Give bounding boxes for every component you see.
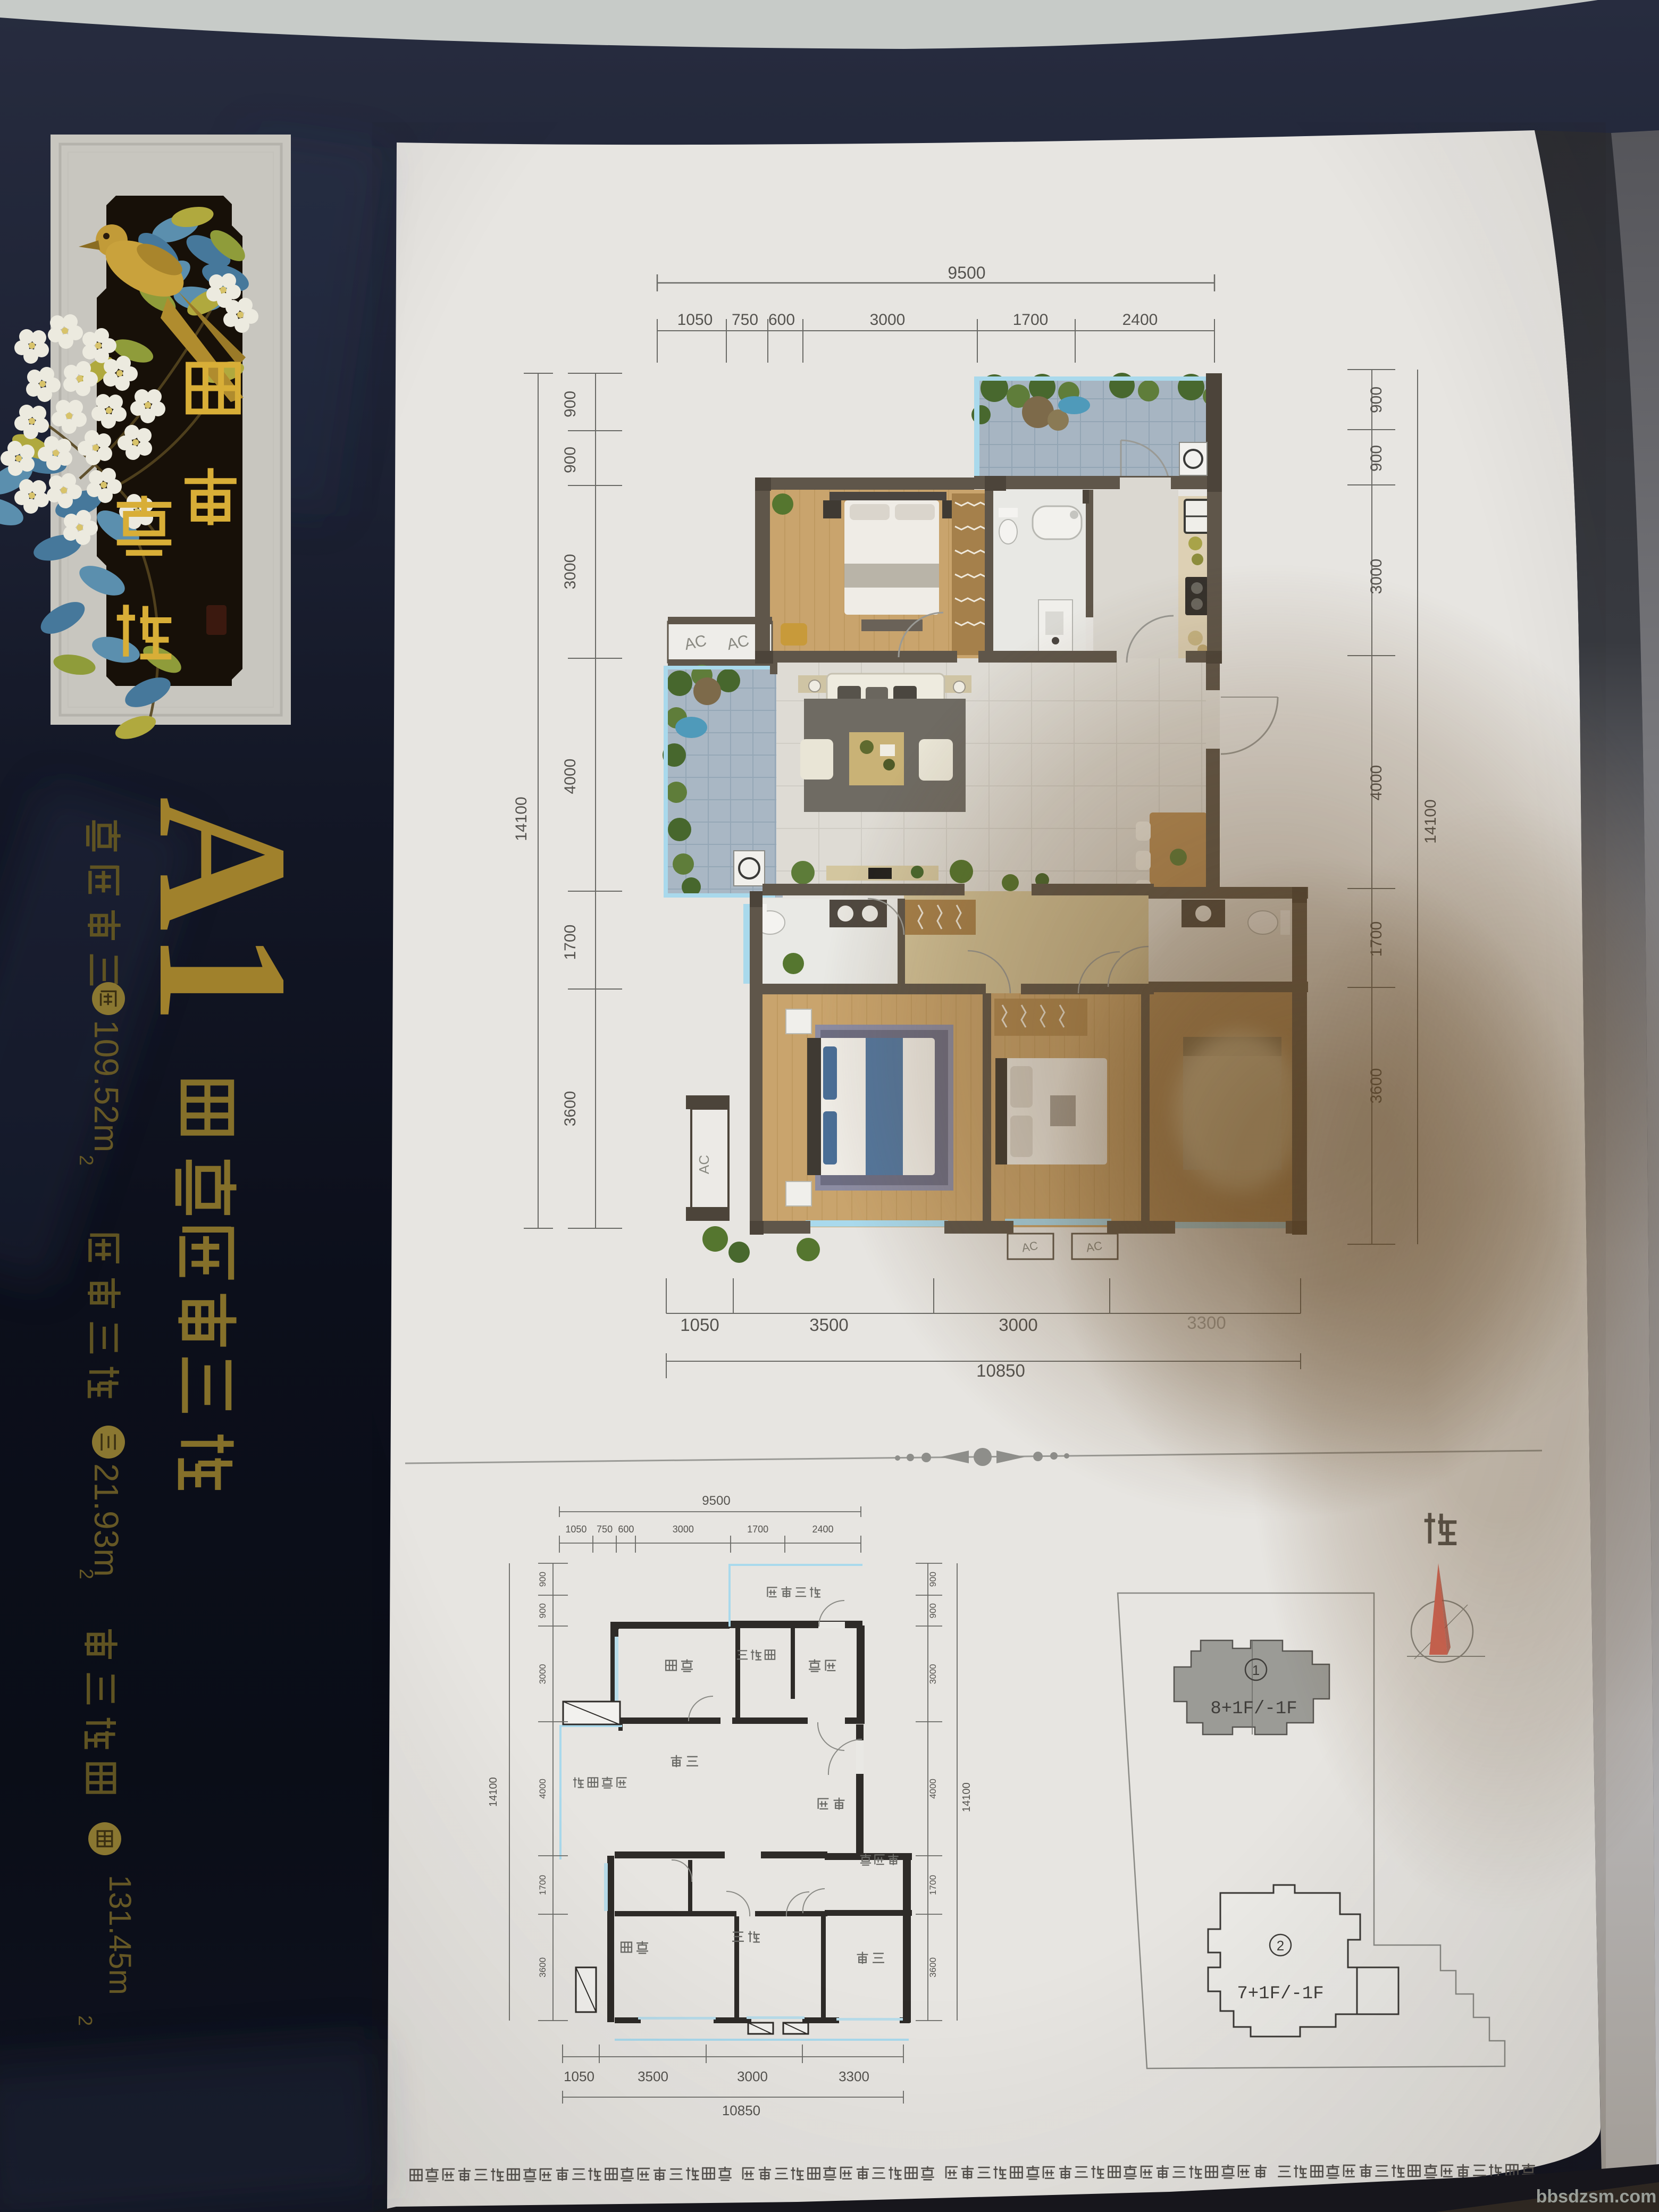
svg-text:bbsdzsm.com: bbsdzsm.com (1536, 2186, 1657, 2207)
svg-text:2: 2 (76, 1155, 97, 1166)
svg-text:2: 2 (76, 1569, 97, 1579)
svg-text:A1: A1 (120, 797, 326, 1024)
svg-text:131.45m: 131.45m (103, 1875, 137, 1995)
svg-text:109.52m: 109.52m (87, 1020, 125, 1152)
svg-text:2: 2 (74, 2015, 96, 2026)
svg-text:21.93m: 21.93m (87, 1463, 125, 1577)
